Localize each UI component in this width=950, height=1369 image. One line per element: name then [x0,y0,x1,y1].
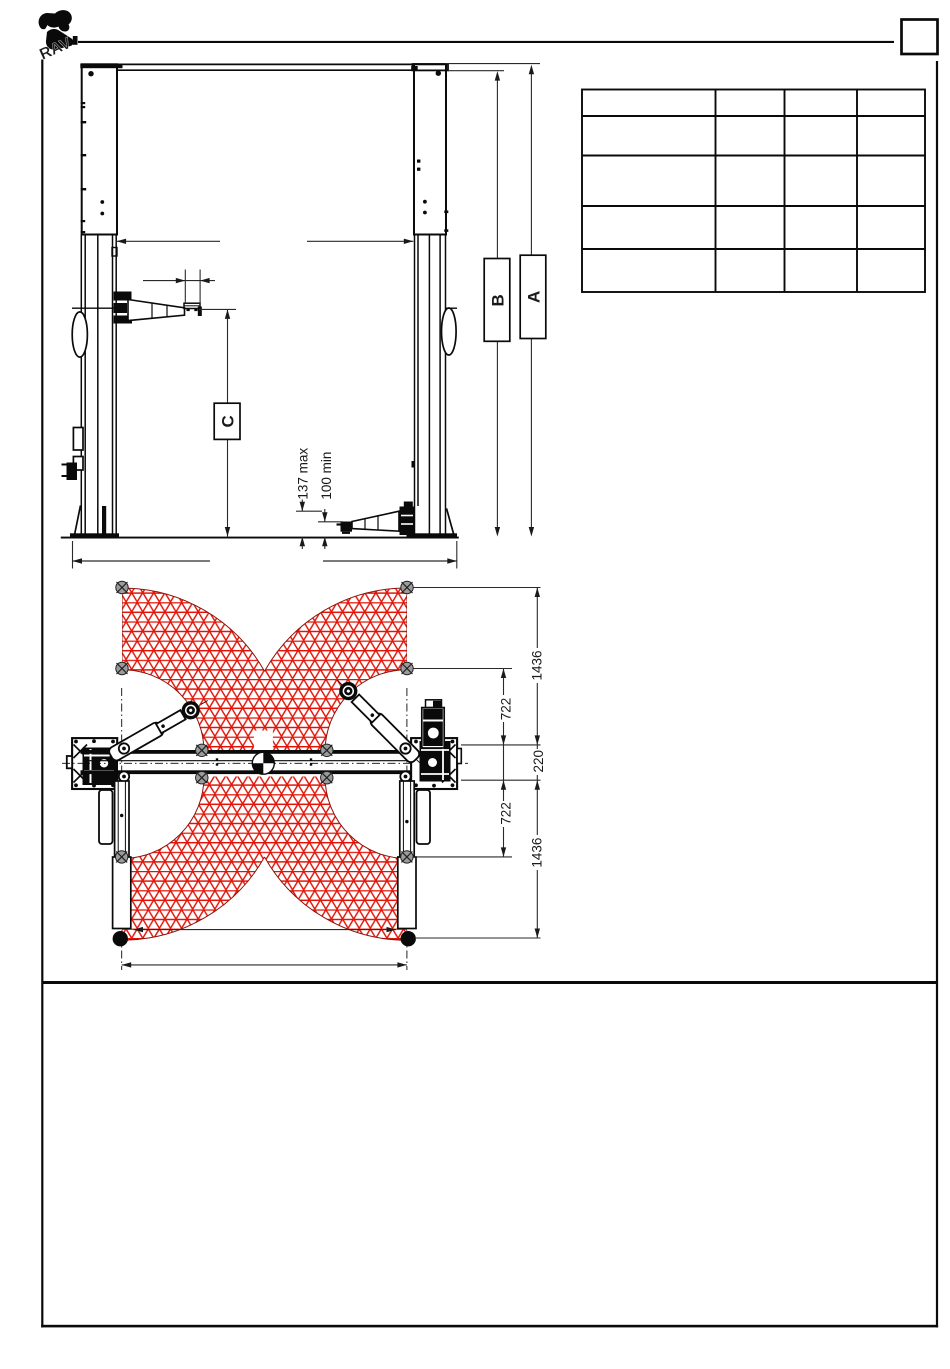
svg-text:RAV: RAV [37,35,74,64]
svg-text:B: B [489,294,508,306]
svg-text:1436: 1436 [530,650,545,680]
svg-text:C: C [219,415,238,427]
svg-text:722: 722 [499,802,514,825]
svg-text:A: A [525,291,544,303]
svg-text:722: 722 [499,698,514,721]
svg-text:220: 220 [531,750,546,773]
svg-text:100 min: 100 min [319,452,334,500]
svg-text:137 max: 137 max [296,448,311,500]
svg-text:1436: 1436 [530,838,545,868]
